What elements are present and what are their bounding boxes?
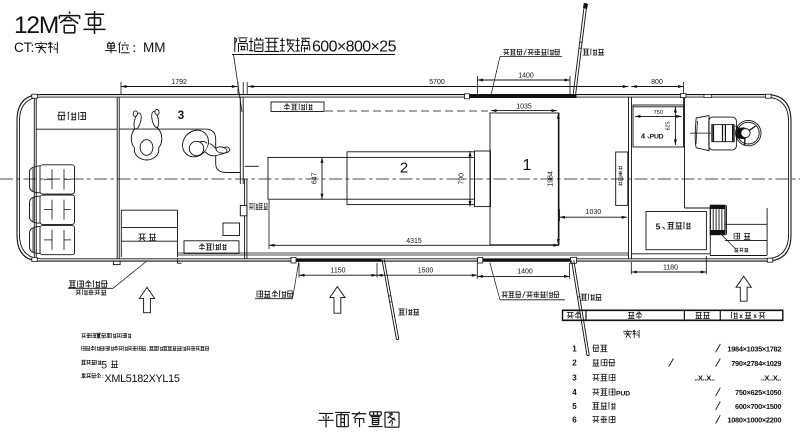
svg-text:1984: 1984 [548,171,555,187]
svg-text:600×800×25: 600×800×25 [312,39,397,56]
svg-text:5700: 5700 [429,79,445,86]
svg-text:750×625×1050: 750×625×1050 [735,388,781,397]
svg-text:1035: 1035 [516,103,532,110]
svg-text:3: 3 [572,374,577,383]
svg-text:PUD: PUD [650,133,664,140]
svg-text:12M: 12M [14,12,58,39]
svg-text:5: 5 [572,402,577,411]
svg-text:5: 5 [101,360,107,372]
svg-text:750: 750 [653,110,663,116]
svg-text:x: x [739,313,743,320]
svg-text:..X..X..: ..X..X.. [761,374,782,383]
svg-text:790×2784×1029: 790×2784×1029 [731,359,781,368]
svg-text:790: 790 [459,173,466,185]
svg-text:1400: 1400 [517,269,533,276]
svg-text:1: 1 [523,157,532,174]
svg-text:XML5182XYL15: XML5182XYL15 [105,373,180,385]
svg-text:1080×1000×2200: 1080×1000×2200 [727,416,781,425]
svg-text:4: 4 [572,388,577,397]
svg-text:1030: 1030 [586,209,602,216]
svg-text:3: 3 [178,110,184,122]
svg-text:D: D [625,390,630,397]
svg-text:1180: 1180 [663,264,678,271]
svg-text:800: 800 [651,79,663,86]
svg-text:CT:: CT: [14,40,34,55]
svg-text:2: 2 [400,160,408,177]
svg-text:1984×1035×1782: 1984×1035×1782 [727,345,781,354]
svg-text:647: 647 [312,172,319,184]
svg-text:625: 625 [666,122,672,131]
svg-text:2: 2 [572,359,577,368]
svg-text:1: 1 [572,344,577,353]
svg-text:6: 6 [572,416,577,425]
svg-text:1792: 1792 [171,79,187,86]
svg-text:1150: 1150 [330,267,345,274]
svg-text:5: 5 [656,221,661,231]
svg-text:..X..X..: ..X..X.. [694,374,715,383]
svg-text:1500: 1500 [418,267,434,274]
svg-text:600×700×1500: 600×700×1500 [735,402,781,411]
svg-text:x: x [753,313,757,320]
svg-text:4315: 4315 [406,238,422,245]
svg-text:MM: MM [143,40,166,55]
svg-text:1400: 1400 [518,72,534,79]
